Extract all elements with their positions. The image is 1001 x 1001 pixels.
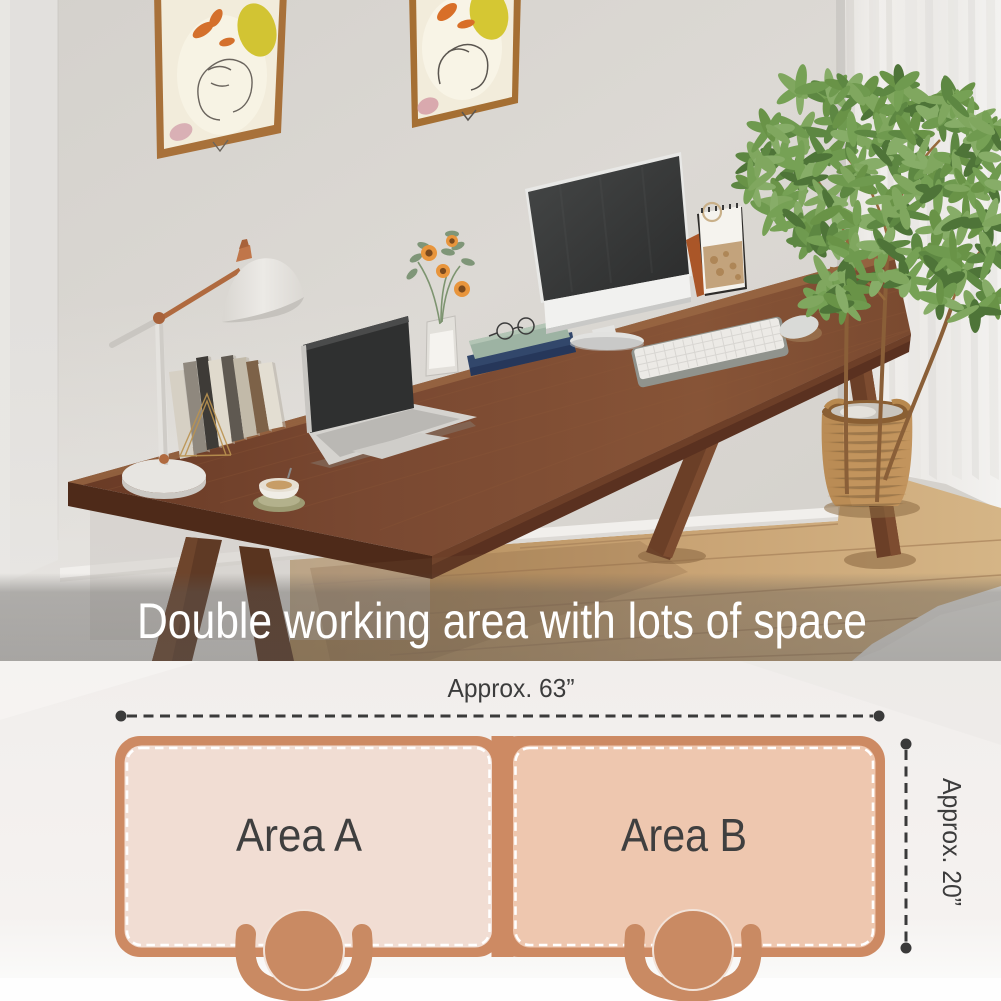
svg-text:Approx. 63”: Approx. 63”: [448, 673, 575, 703]
svg-text:Area B: Area B: [621, 809, 747, 861]
svg-text:Double working area with lots: Double working area with lots of space: [137, 593, 867, 649]
svg-text:Approx. 20”: Approx. 20”: [937, 778, 967, 906]
svg-text:Area A: Area A: [236, 809, 362, 861]
